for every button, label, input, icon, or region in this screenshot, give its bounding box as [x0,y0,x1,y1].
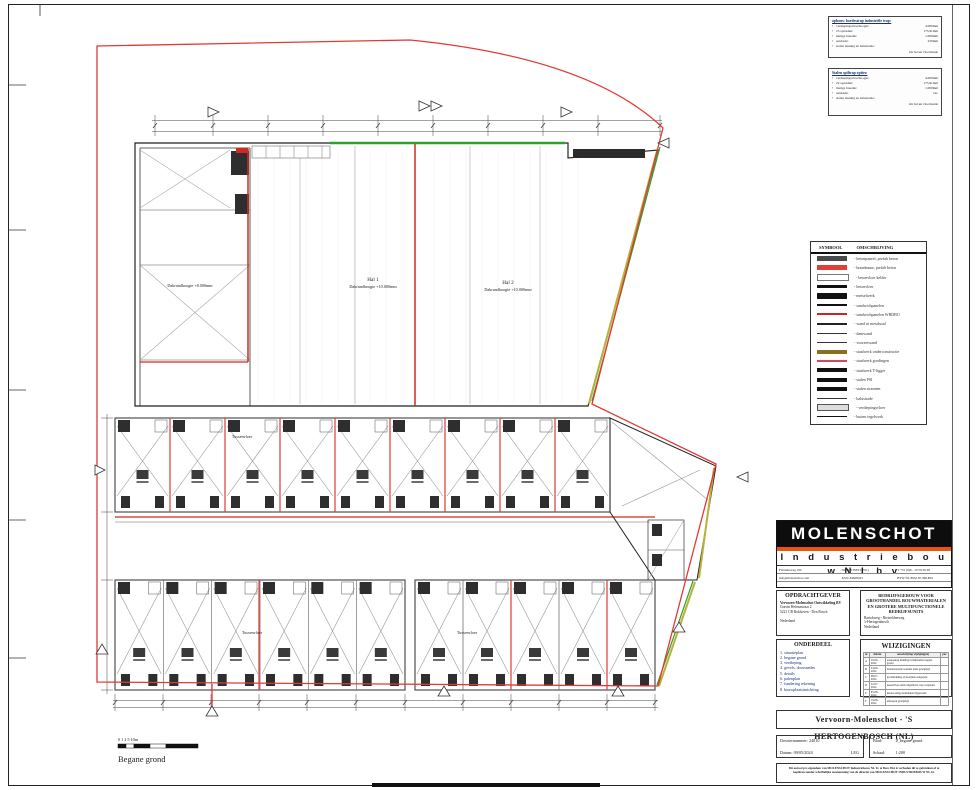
company-address: Fabrieksweg 19C [777,566,840,574]
brand-subtitle: I n d u s t r i e b o u w N L b v [777,551,951,566]
scale-label: Schaal: [873,750,896,755]
legend-row: - sandwichpanelen WBDBO [811,310,926,319]
sheet-label: Blad: [873,738,896,743]
company-phone: T +31 (0)6 - 10 59 26 28 [895,566,951,574]
hal1-label: Hal 1 [367,277,379,283]
project-description: BEDRIJFSGEBOUW VOOR GROOTHANDEL BOUWMATE… [864,593,948,614]
legend-row: - betonvloer [811,282,926,291]
legend-desc: - stalen PSI [854,377,872,382]
east-wedge [610,418,716,686]
legend-row: - balustrade [811,393,926,402]
project-box: BEDRIJFSGEBOUW VOOR GROOTHANDEL BOUWMATE… [860,590,952,636]
unit-cell [163,580,211,690]
legend-swatch [817,387,847,391]
legend-desc: - wand in metalstud [854,321,886,326]
legend-desc: - stalen stramien [854,386,880,391]
note-title: Stalen spiltrap opties: [832,71,938,75]
unit-cell [260,580,308,690]
client-country: Nederland [780,619,846,624]
floor-title: Begane grond [118,754,166,764]
unit-cell [607,580,655,690]
bottom-left-block [115,580,405,690]
legend-swatch [817,404,849,411]
legend-box: SYMBOOL OMSCHRIJVING - betonpaneel, pref… [810,241,927,425]
legend-swatch [817,350,847,354]
hal2-sublabel: Dakrandhoogte +10.000mm [484,287,532,292]
legend-swatch [817,416,847,418]
hall-floor-hatch [258,150,578,402]
legend-desc: - metselwerk [854,293,875,298]
unit-cell [555,418,610,512]
hal2-label: Hal 2 [502,280,514,286]
wijz-row: A10-06-2024aanpassing indeling bedrijfsu… [864,658,949,666]
sheet-info-box: Blad: 2_begane grond Schaal: 1:200 [869,735,952,758]
legend-swatch [817,274,849,281]
parts-box: ONDERDEEL 1. situatieplan2. begane grond… [776,639,850,697]
site-boundary [97,40,716,712]
sheet-project-title: Vervoorn-Molenschot - 'S HERTOGENBOSCH (… [776,710,952,729]
legend-desc: - brandmuur, prefab beton [854,265,896,270]
client-box: OPDRACHTGEVER Vervoorn-Molenschot Ontwik… [776,590,850,636]
legend-desc: - sandwichpanelen [854,303,884,308]
dossier-box: Dossiernummer: 24010 Datum: 09/05/2024 L… [776,735,864,758]
left-hall-label: Dakrandhoogte +8.000mm [167,283,213,288]
stair-note-box-2: Stalen spiltrap opties: •verdiepingsvloe… [828,68,942,116]
scale-value: 1:200 [896,750,949,755]
company-logo-block: MOLENSCHOT I n d u s t r i e b o u w N L… [776,520,952,588]
legend-swatch [817,304,847,306]
revisions-title: WIJZIGINGEN [863,642,949,650]
client-box-title: OPDRACHTGEVER [780,593,846,599]
note-item: 1m boven vloerbande [832,50,938,55]
legend-swatch [817,333,847,334]
legend-desc: - staalwerk onderconstructie [854,349,899,354]
legend-row: - wand in metalstud [811,319,926,328]
brand-name: MOLENSCHOT [777,521,951,547]
unit-cell [280,418,335,512]
legend-swatch [817,293,847,299]
bottom-right-block [415,580,655,690]
unit-cell [559,580,607,690]
unit-cell [357,580,405,690]
upper-hall [135,143,660,406]
company-contact: Fabrieksweg 19C 5684PN BEST (NL) T +31 (… [777,566,951,582]
middle-unit-band [115,418,655,522]
unit-cell [225,418,280,512]
company-city: 5684PN BEST (NL) [840,566,896,574]
legend-desc: - betonpaneel, prefab beton [854,256,898,261]
legend-swatch [817,323,847,325]
legend-row: - betonvloer kelder [811,273,926,282]
legend-row: - betonpaneel, prefab beton [811,254,926,263]
legend-row: - stalen PSI [811,375,926,384]
wijz-row: D22-07-2024tussenvloer units uitgebreid,… [864,682,949,690]
scale-bar-ticks: 0 1 2 5 10m [118,737,139,742]
legend-row: - brandmuur, prefab beton [811,263,926,272]
revisions-box: WIJZIGINGEN nrdatumomschrijving wijzigin… [860,639,952,697]
firewall-block [236,148,248,153]
parts-box-title: ONDERDEEL [780,642,846,648]
legend-swatch [817,342,847,343]
mezzanine-label-2: Tussenvloer [242,630,263,635]
company-btw: BTW NL 8632.87.366.B01 [895,574,951,582]
wijz-row: C08-07-2024gevelindeling en kozijnen aan… [864,674,949,682]
left-hall-room [140,148,250,406]
legend-desc: - staalwerk gordingen [854,358,889,363]
hal1-sublabel: Dakrandhoogte +10.000mm [349,284,397,289]
unit-cell [212,580,260,690]
note-item: 1m boven vloerbande [832,102,938,107]
onderdeel-item: 8. bouwplaatsinrichting [780,687,846,692]
legend-row: - voorzetwand [811,338,926,347]
section-markers [95,101,748,716]
unit-cell [170,418,225,512]
legend-swatch [817,313,847,315]
legend-swatch [817,256,847,261]
drawing-sheet: Dakrandhoogte +8.000mm Hal 1 Dakrandhoog… [0,0,978,790]
legend-desc: - voorzetwand [854,340,877,345]
scale-bar [118,744,198,748]
legend-desc: - balustrade [854,396,873,401]
stair-block [231,151,249,175]
mezzanine-label-3: Tussenvloer [457,630,478,635]
sheet-name: 2_begane grond [896,738,949,743]
copyright-disclaimer: Dit ontwerp is eigendom van MOLENSCHOT I… [776,763,952,783]
dossier-author: LEG [851,750,859,755]
legend-row: - buiten tegelwerk [811,412,926,421]
legend-row: - staalwerk T-ligger [811,366,926,375]
note-title: opbouw bordestrap industriële trap: [832,19,938,23]
dossier-number: Dossiernummer: 24010 [780,738,860,743]
mezzanine-label-1: Tussenvloer [232,434,253,439]
legend-desc: - sandwichpanelen WBDBO [854,312,900,317]
legend-row: - metselwerk [811,291,926,300]
legend-header: SYMBOOL OMSCHRIJVING [811,242,926,254]
legend-row: - stalen stramien [811,384,926,393]
legend-row: - staalwerk gordingen [811,356,926,365]
legend-row: - damwand [811,328,926,337]
wijz-row: B24-06-2024brandwerende wanden units gew… [864,666,949,674]
legend-desc: - verdiepingsvloer [856,405,885,410]
unit-cell [415,580,463,690]
legend-swatch [817,368,847,372]
legend-row: - sandwichpanelen [811,300,926,309]
roof-edge-block [573,149,645,158]
shaft-block [235,194,249,214]
legend-desc: - buiten tegelwerk [854,414,883,419]
wijz-row: F19-08-2024entreepui gewijzigd [864,698,949,706]
legend-desc: - betonvloer [854,284,873,289]
unit-cell [335,418,390,512]
legend-swatch [817,378,847,382]
stair-note-box-1: opbouw bordestrap industriële trap: •ver… [828,16,942,58]
legend-desc: - staalwerk T-ligger [854,368,885,373]
revisions-table: nrdatumomschrijving wijziging(en)par. A1… [863,652,949,707]
unit-cell [500,418,555,512]
legend-swatch [817,360,847,362]
legend-desc: - betonvloer kelder [856,275,886,280]
firewalls [140,143,415,406]
legend-header-description: OMSCHRIJVING [856,245,893,250]
company-email: info@molenschot.com [777,574,840,582]
legend-row: - staalwerk onderconstructie [811,347,926,356]
project-country: Nederland [864,625,948,630]
wijz-row: E05-08-2024maatvoering stramienen bijgew… [864,690,949,698]
legend-swatch [817,398,847,399]
legend-swatch [817,285,847,288]
unit-cell [115,580,163,690]
entrance-strip [252,146,330,158]
company-kvk: KVK 84628423 [840,574,896,582]
legend-swatch [817,265,847,270]
unit-cell [511,580,559,690]
sheet-footer-bar [372,783,600,787]
unit-cell [445,418,500,512]
legend-row: - verdiepingsvloer [811,403,926,412]
legend-header-symbol: SYMBOOL [819,245,842,250]
unit-cell [308,580,356,690]
dossier-date: Datum: 09/05/2024 [780,750,813,755]
unit-cell [463,580,511,690]
unit-cell [390,418,445,512]
unit-cell [115,418,170,512]
legend-desc: - damwand [854,331,872,336]
